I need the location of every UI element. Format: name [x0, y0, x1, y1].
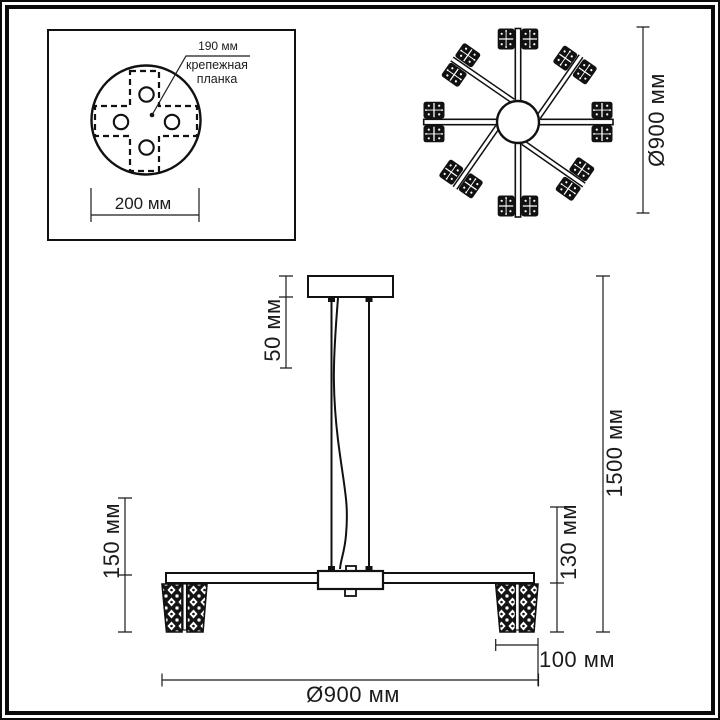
plate-width-dimension: 190 мм	[181, 38, 255, 54]
shade-width-dimension: 100 мм	[522, 649, 632, 671]
front-view-diameter-dimension: Ø900 мм	[298, 684, 408, 706]
mounting-plate-label: крепежная планка	[179, 57, 255, 87]
front-view-drawing	[100, 260, 640, 710]
total-height-dimension: 1500 мм	[604, 398, 626, 508]
top-view-diameter-dimension: Ø900 мм	[646, 65, 668, 175]
dimension-drawing-page: 190 мм крепежная планка 200 мм	[0, 0, 720, 720]
canopy-height-dimension: 50 мм	[262, 275, 284, 385]
left-drop-dimension: 150 мм	[101, 486, 123, 596]
base-diameter-dimension: 200 мм	[98, 194, 188, 214]
shade-height-dimension: 130 мм	[558, 487, 580, 597]
